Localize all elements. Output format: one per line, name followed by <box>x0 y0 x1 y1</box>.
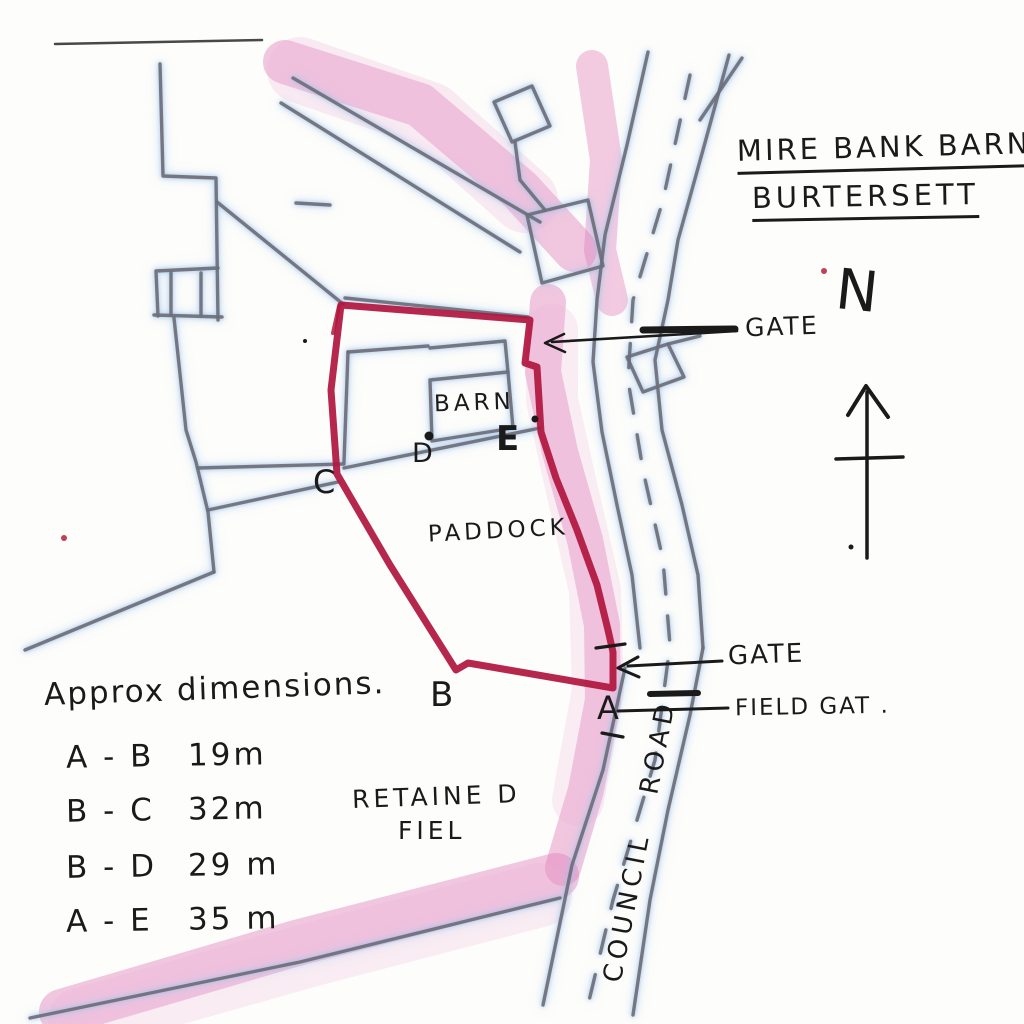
dimension-row: A - E 35 m <box>66 900 280 940</box>
wall-diagonal-to-plot <box>217 202 343 304</box>
field-gate-label: FIELD GAT . <box>735 695 890 721</box>
stray-dot-red-right <box>821 268 827 274</box>
gate-upper-arrow-thick <box>643 329 735 330</box>
dimension-value: 29 m <box>188 846 280 884</box>
point-e-label: E <box>496 422 519 456</box>
wall-left-staircase <box>160 64 218 320</box>
wall-left-lower <box>174 318 214 572</box>
dimension-pair: B - D <box>66 848 189 886</box>
wall-diagonal-bottom-left <box>25 572 214 650</box>
stray-dot-black <box>303 339 307 343</box>
yard-top-edge <box>348 346 428 352</box>
dimension-pair: A - E <box>66 902 189 940</box>
retained-field-label-line1: RETAINE D <box>352 781 521 812</box>
north-arrow-crossbar <box>836 457 903 459</box>
dimension-value: 32m <box>188 790 267 827</box>
building-small-square <box>494 86 550 142</box>
road-fork-branch <box>700 58 742 120</box>
north-arrow-dot <box>849 545 854 550</box>
point-d-label: D <box>412 440 433 467</box>
gate-lower-label: GATE <box>728 641 805 670</box>
scanned-site-plan: MIRE BANK BARN BURTERSETT N GATE GATE FI… <box>0 0 1024 1024</box>
dimension-value: 19m <box>188 736 267 773</box>
scan-edge-line <box>55 40 262 44</box>
dimension-row: B - D 29 m <box>66 846 280 886</box>
wall-left-notch <box>156 268 218 316</box>
blue-smudge <box>296 203 330 205</box>
point-a-label: A <box>597 692 619 724</box>
building-right-spur <box>668 336 700 344</box>
point-b-label: B <box>430 678 453 712</box>
yard-left-edge <box>344 352 348 462</box>
dimension-row: B - C 32m <box>66 790 267 829</box>
gate-upper-label: GATE <box>745 313 819 341</box>
barn-upper-edge <box>430 341 508 372</box>
north-label: N <box>833 262 881 322</box>
page-title: MIRE BANK BARN <box>737 129 1024 175</box>
dimension-value: 35 m <box>188 900 280 938</box>
dimension-pair: A - B <box>66 738 189 776</box>
road-right-edge <box>655 55 729 648</box>
page-subtitle: BURTERSETT <box>752 180 980 222</box>
point-c-label: C <box>313 466 335 498</box>
retained-field-label-line2: FIEL <box>398 818 465 843</box>
stray-dot-red-left <box>61 535 67 541</box>
point-e-dot <box>532 416 539 423</box>
barn-label: BARN <box>434 391 515 417</box>
dimension-pair: B - C <box>66 792 189 830</box>
dimension-row: A - B 19m <box>66 736 267 775</box>
wall-left-box-bottom <box>154 315 222 317</box>
